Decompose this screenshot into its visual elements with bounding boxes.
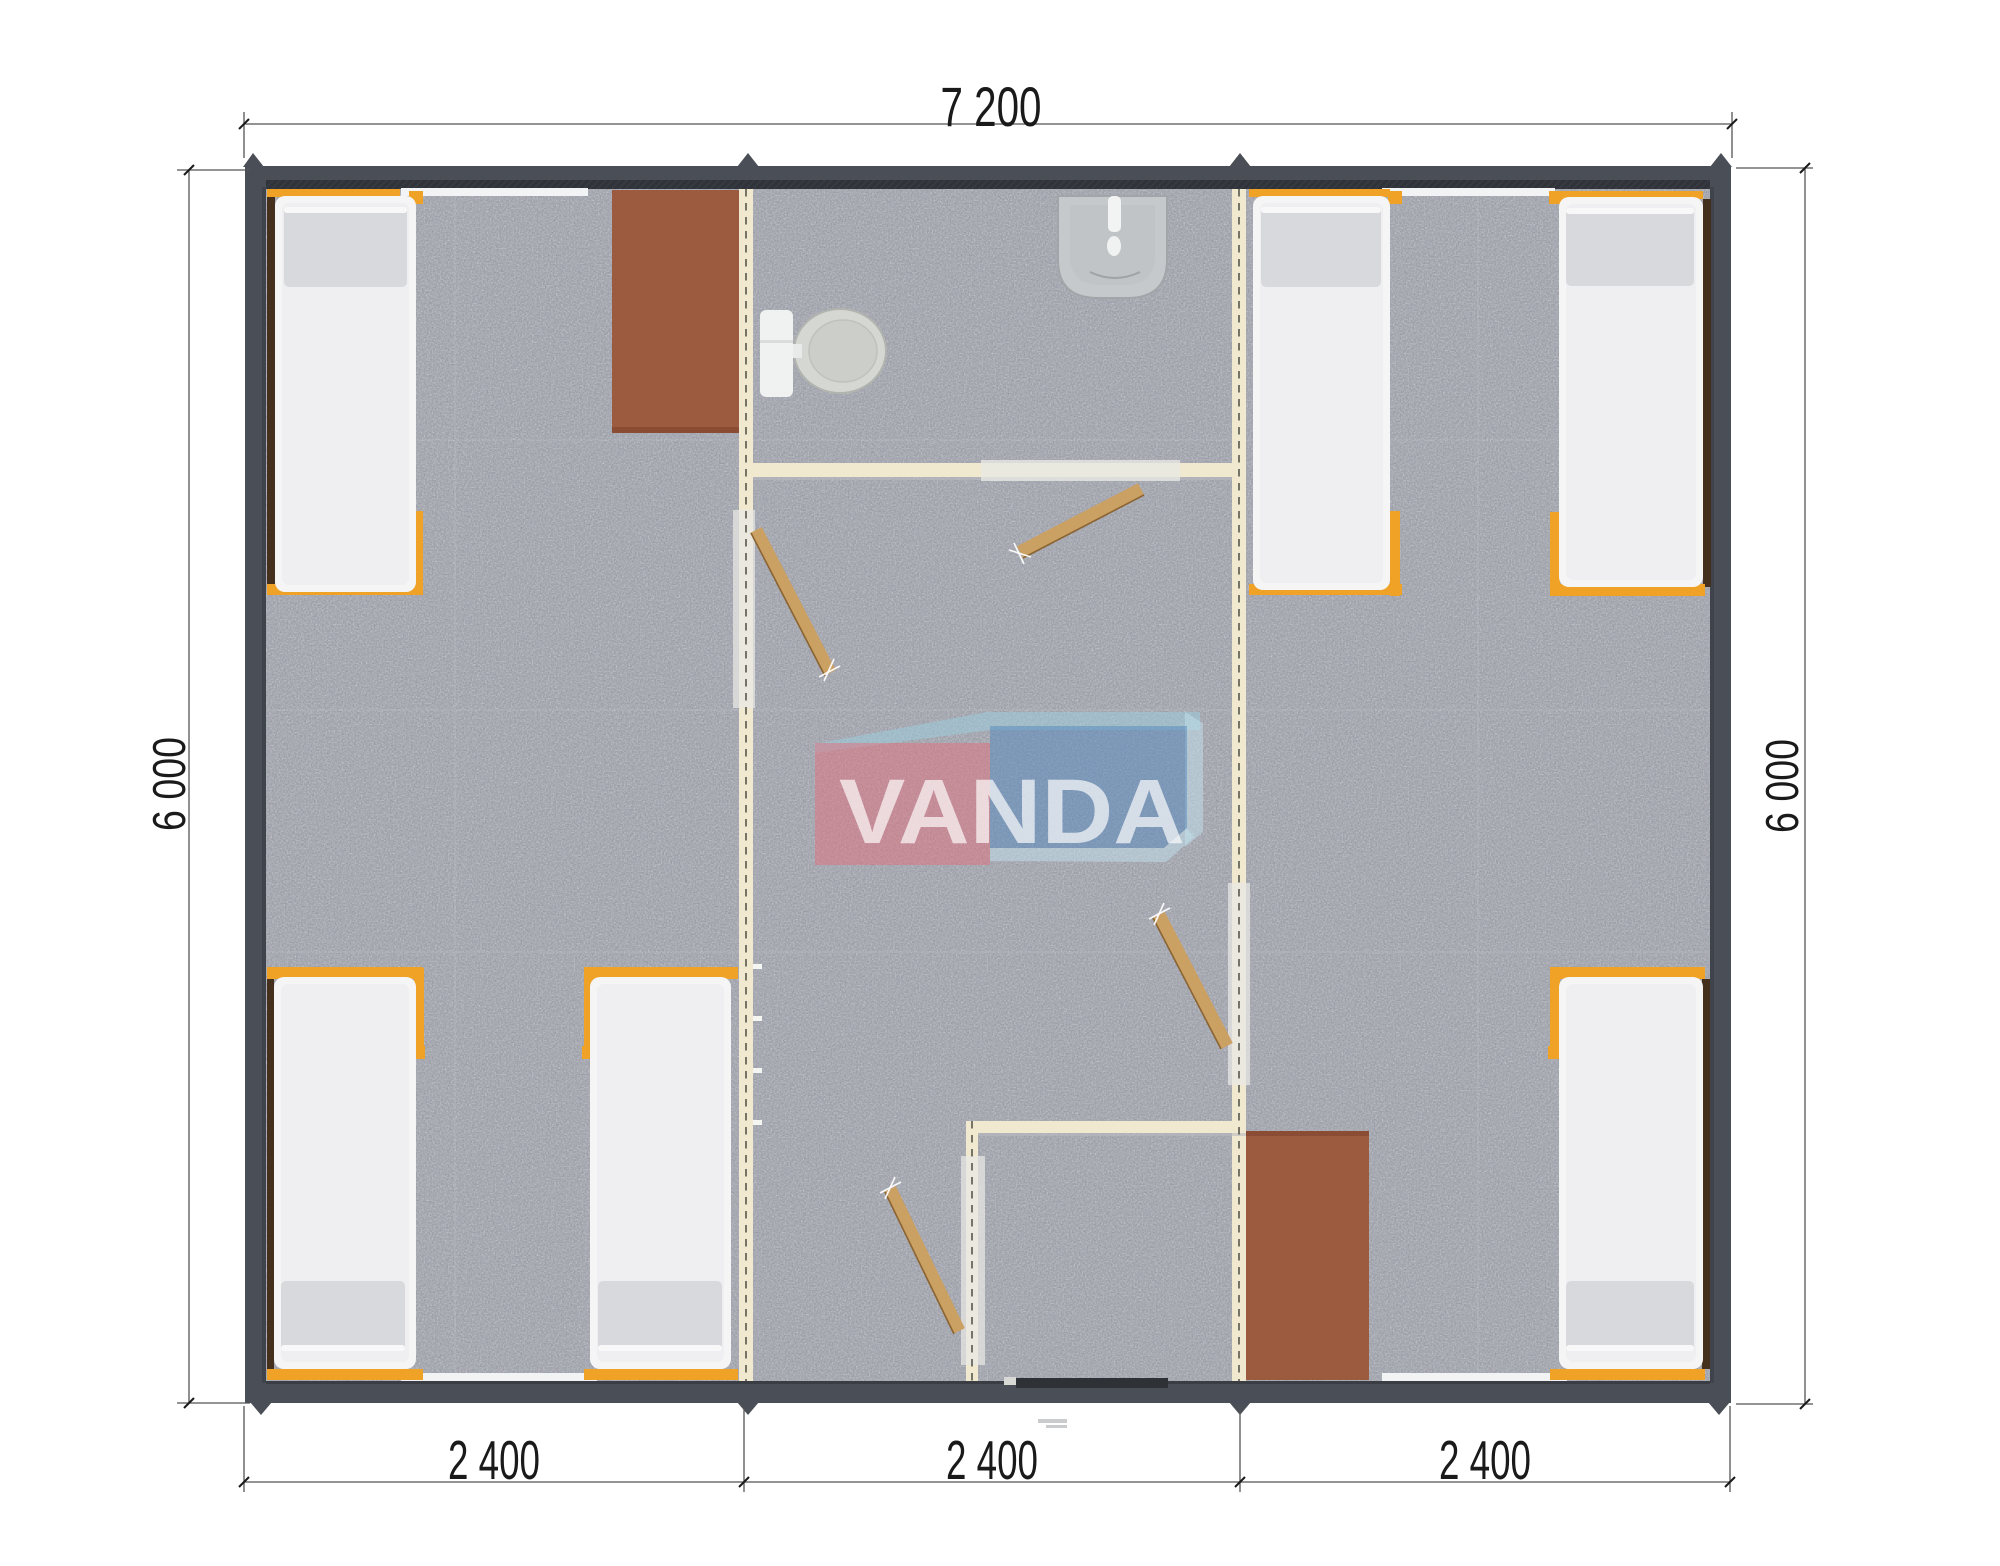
svg-text:2 400: 2 400 [448,1429,540,1491]
svg-text:7 200: 7 200 [941,75,1042,138]
svg-text:VANDA: VANDA [839,761,1185,863]
svg-text:6 000: 6 000 [1756,739,1808,833]
svg-text:6 000: 6 000 [143,737,195,831]
svg-text:2 400: 2 400 [946,1429,1038,1491]
svg-text:2 400: 2 400 [1439,1429,1531,1491]
